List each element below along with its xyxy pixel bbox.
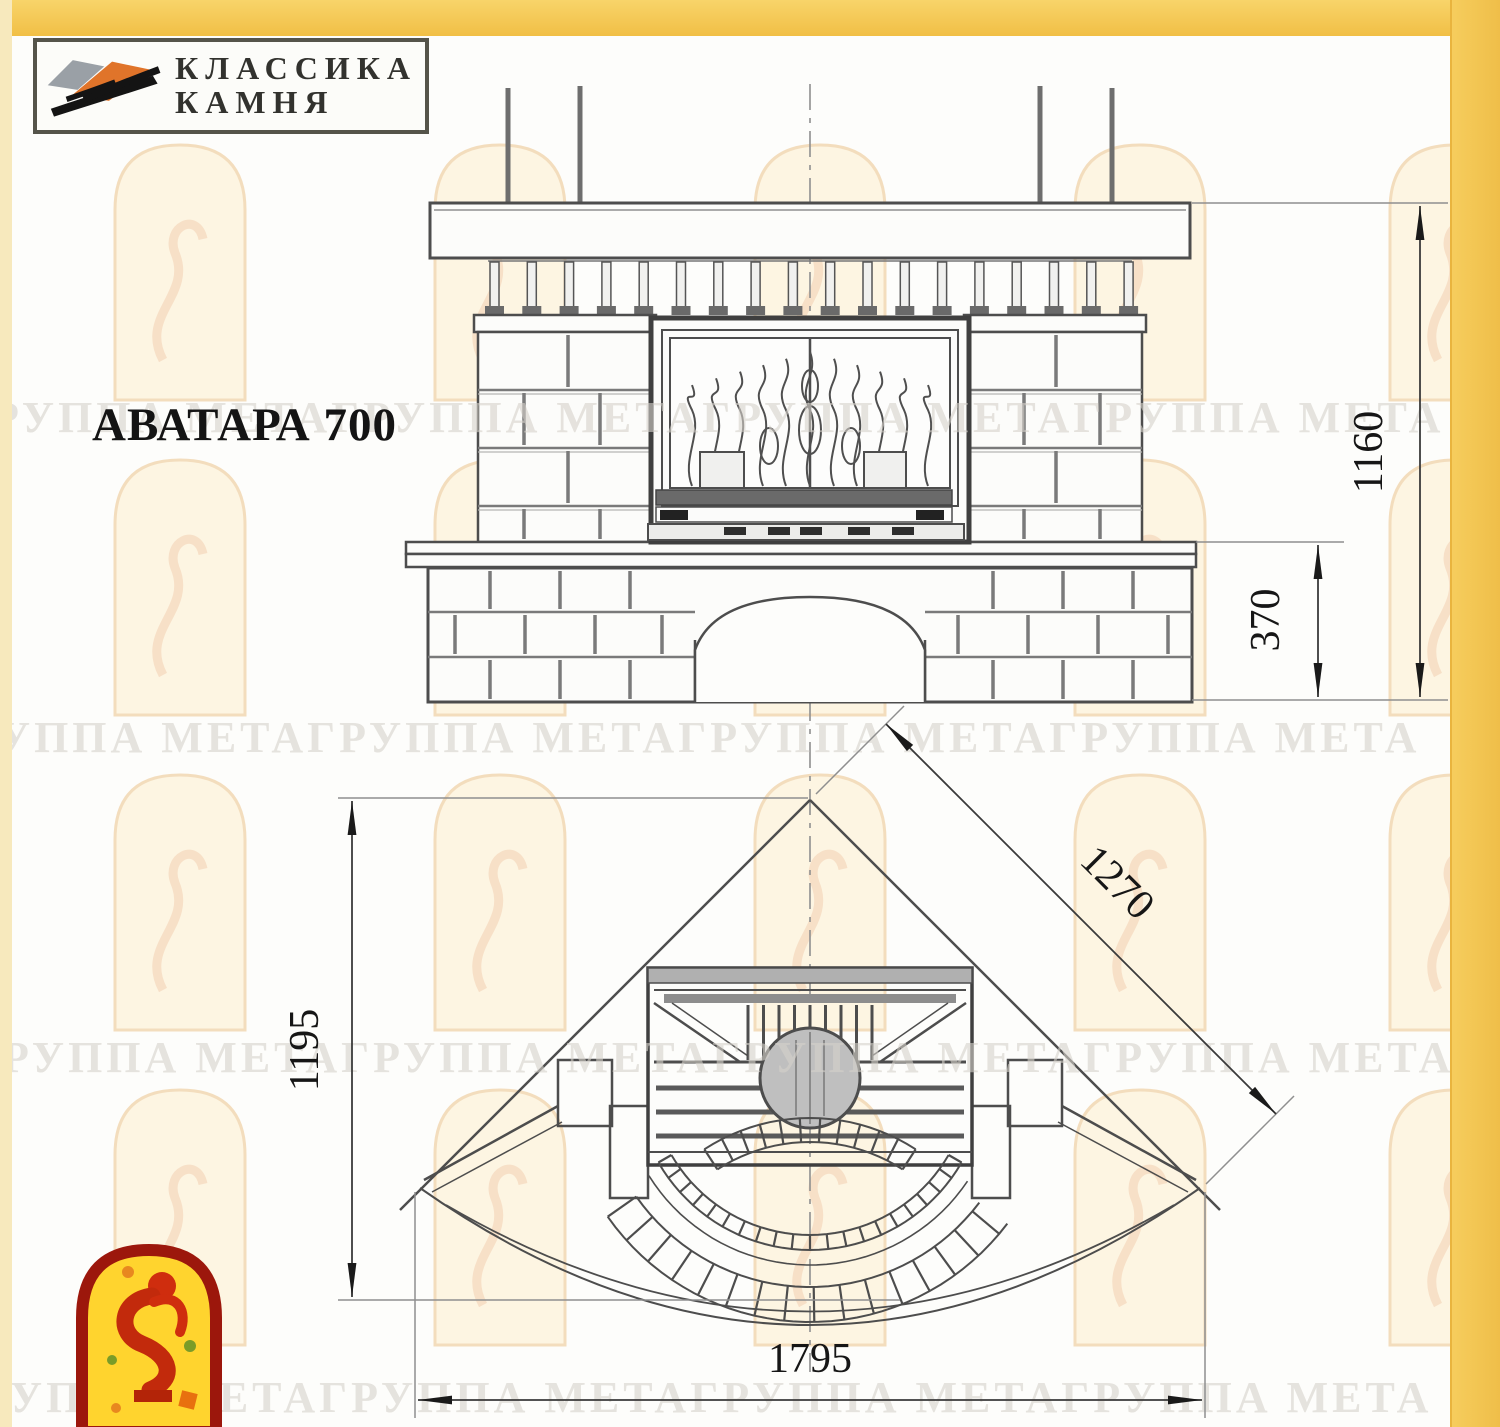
baluster-base <box>634 306 653 315</box>
radial-tick <box>904 1204 913 1216</box>
side-shelf-right <box>964 315 1146 332</box>
baluster <box>975 262 984 307</box>
radial-tick <box>890 1214 898 1227</box>
baluster <box>639 262 648 307</box>
radial-tick <box>939 1169 951 1178</box>
drawing-sheet: ГРУППА МЕТАГРУППА МЕТАГРУППА МЕТАГРУППА … <box>0 0 1500 1427</box>
dimension-label-plinth: 370 <box>1243 589 1289 652</box>
handle-strip <box>656 507 952 522</box>
baluster <box>863 262 872 307</box>
baluster-base <box>485 306 504 315</box>
baluster-base <box>970 306 989 315</box>
radial-tick <box>935 1247 956 1275</box>
door-handle-left <box>660 510 688 520</box>
baluster-base <box>783 306 802 315</box>
door-bottom-rail <box>656 490 952 505</box>
baluster <box>1124 262 1133 307</box>
radial-tick <box>698 1264 714 1295</box>
dimension-label-depth: 1195 <box>282 1009 328 1091</box>
radial-tick <box>722 1139 733 1160</box>
firebox-band-dark <box>664 994 956 1003</box>
radial-tick <box>707 1204 716 1216</box>
baluster <box>751 262 760 307</box>
wood-niche-arch <box>695 597 925 702</box>
brand-logo-box: КЛАССИКА КАМНЯ <box>33 38 429 134</box>
radial-tick <box>949 1155 962 1163</box>
vent-slot <box>892 527 914 535</box>
side-block-left-lower <box>610 1106 648 1198</box>
baluster <box>714 262 723 307</box>
baluster-base <box>933 306 952 315</box>
side-block-right-lower <box>972 1106 1010 1198</box>
radial-tick <box>672 1251 692 1280</box>
watermark-text-row: ГРУППА МЕТАГРУППА МЕТАГРУППА МЕТАГРУППА … <box>0 713 1420 762</box>
stone-stack-icon <box>43 45 167 127</box>
baluster-base <box>1119 306 1138 315</box>
speck-orange <box>111 1403 121 1413</box>
radial-tick <box>887 1139 898 1160</box>
brand-name-line1: КЛАССИКА <box>175 52 417 86</box>
radial-tick <box>608 1197 637 1217</box>
speck-orange <box>122 1266 134 1278</box>
radial-tick <box>723 1214 731 1227</box>
radial-tick <box>626 1217 652 1240</box>
extension-line <box>1206 1096 1294 1184</box>
baluster-base <box>560 306 579 315</box>
radial-tick <box>889 1272 902 1304</box>
vent-slot <box>800 527 822 535</box>
meta-firebird-icon <box>76 1242 222 1427</box>
dimension-label-width: 1795 <box>768 1336 852 1382</box>
fireplace-technical-drawing: ГРУППА МЕТАГРУППА МЕТАГРУППА МЕТАГРУППА … <box>0 0 1500 1427</box>
vent-slot <box>768 527 790 535</box>
model-title: АВАТАРА 700 <box>92 398 397 452</box>
door-handle-right <box>916 510 944 520</box>
baluster-base <box>597 306 616 315</box>
radial-tick <box>819 1118 820 1142</box>
radial-tick <box>917 1194 927 1205</box>
hearth-shelf-band <box>406 554 1196 567</box>
baluster <box>1012 262 1021 307</box>
baluster <box>788 262 797 307</box>
side-shelf-left <box>474 315 656 332</box>
page-border-top <box>0 0 1500 36</box>
page-border-left <box>0 0 12 1427</box>
baluster <box>527 262 536 307</box>
radial-tick <box>648 1235 671 1261</box>
baluster-base <box>895 306 914 315</box>
radial-tick <box>913 1260 930 1291</box>
brand-name-line2: КАМНЯ <box>175 86 417 120</box>
speck-green <box>107 1355 117 1365</box>
radial-tick <box>929 1182 940 1192</box>
radial-tick <box>668 1169 680 1178</box>
radial-tick <box>955 1230 979 1256</box>
baluster <box>565 262 574 307</box>
baluster <box>602 262 611 307</box>
log <box>864 452 906 488</box>
baluster <box>826 262 835 307</box>
radial-tick <box>680 1182 691 1192</box>
radial-tick <box>726 1274 738 1307</box>
radial-tick <box>814 1287 815 1322</box>
radial-tick <box>800 1118 801 1142</box>
baluster-base <box>1082 306 1101 315</box>
baluster-base <box>522 306 541 315</box>
vent-slot <box>724 527 746 535</box>
page-border-right <box>1450 0 1500 1427</box>
baluster <box>938 262 947 307</box>
radial-tick <box>972 1211 999 1234</box>
baluster <box>1087 262 1096 307</box>
radial-tick <box>739 1221 745 1235</box>
baluster-base <box>672 306 691 315</box>
baluster-base <box>709 306 728 315</box>
baluster <box>490 262 499 307</box>
firebox-back-band <box>648 968 972 983</box>
baluster-base <box>1045 306 1064 315</box>
baluster <box>1050 262 1059 307</box>
baluster <box>677 262 686 307</box>
brand-name: КЛАССИКА КАМНЯ <box>175 52 417 120</box>
meta-firebird-logo <box>76 1242 222 1427</box>
baluster-base <box>858 306 877 315</box>
vent-slot <box>848 527 870 535</box>
radial-tick <box>693 1194 703 1205</box>
radial-tick <box>658 1155 671 1163</box>
baluster-base <box>821 306 840 315</box>
figure-base <box>134 1390 172 1402</box>
log <box>700 452 744 488</box>
mantel-shelf <box>430 203 1190 258</box>
baluster-base <box>746 306 765 315</box>
baluster <box>900 262 909 307</box>
baluster-base <box>1007 306 1026 315</box>
dimension-label-height: 1160 <box>1346 411 1392 493</box>
speck-green <box>184 1340 196 1352</box>
